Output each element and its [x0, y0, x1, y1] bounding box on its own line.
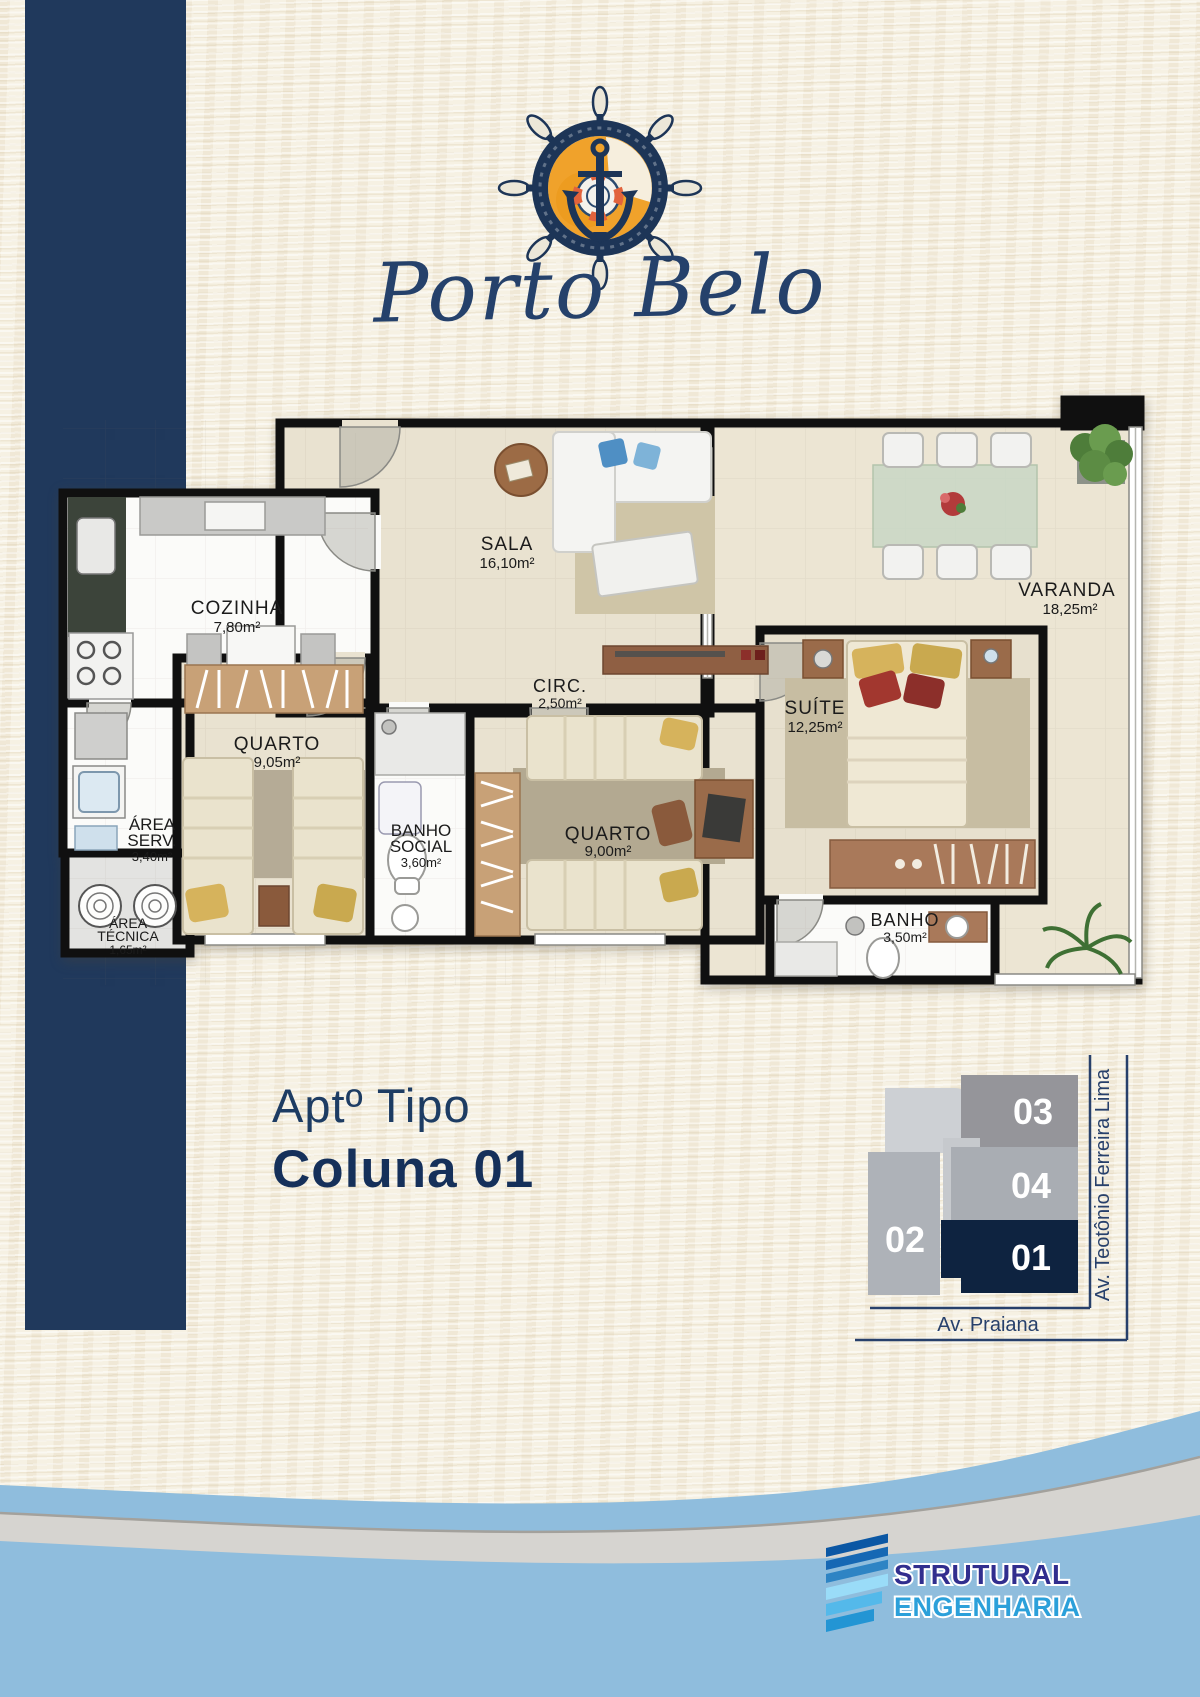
strutural-logo: STRUTURAL ENGENHARIA [812, 1532, 1112, 1652]
keymap-unit-01-number: 01 [1011, 1237, 1051, 1278]
keymap-unit-01-shape-highlighted [941, 1220, 1078, 1293]
label-varanda: VARANDA [1018, 580, 1115, 601]
label-banho: BANHO [870, 910, 939, 930]
label-area-tecnica-area: 1,65m² [109, 943, 146, 957]
keymap-unit-03-number: 03 [1013, 1091, 1053, 1132]
label-area-tecnica-2: TÉCNICA [97, 928, 159, 944]
label-suite-area: 12,25m² [787, 719, 842, 736]
label-quarto2-area: 9,00m² [585, 843, 632, 860]
label-circ-area: 2,50m² [538, 695, 582, 711]
label-area-serv-area: 3,40m² [132, 849, 173, 864]
builder-name-line1: STRUTURAL [894, 1559, 1070, 1590]
label-quarto1: QUARTO [234, 734, 321, 755]
bedroom1-furniture [182, 665, 365, 934]
apartment-column-label: Coluna 01 [272, 1139, 534, 1200]
label-cozinha-area: 7,80m² [214, 619, 261, 636]
label-varanda-area: 18,25m² [1042, 601, 1097, 618]
apartment-type-label: Aptº Tipo [272, 1078, 534, 1133]
label-sala: SALA [481, 534, 534, 555]
location-key-map: 03 04 01 02 Av. Teotônio Ferreira Lima A… [830, 1050, 1142, 1352]
street-label-bottom: Av. Praiana [937, 1314, 1039, 1336]
apartment-title-block: Aptº Tipo Coluna 01 [272, 1078, 534, 1200]
builder-name-line2: ENGENHARIA [894, 1592, 1081, 1622]
label-banho-social-area: 3,60m² [401, 855, 442, 870]
keymap-unit-04-number: 04 [1011, 1165, 1051, 1206]
label-cozinha: COZINHA [191, 598, 284, 619]
label-area-serv-2: SERV. [127, 831, 176, 850]
strutural-logo-mark [826, 1534, 888, 1632]
label-circ: CIRC. [533, 676, 587, 696]
label-quarto2: QUARTO [565, 824, 652, 845]
label-banho-social-2: SOCIAL [390, 837, 452, 856]
label-suite: SUÍTE [785, 698, 846, 719]
street-label-right: Av. Teotônio Ferreira Lima [1092, 1068, 1114, 1301]
label-sala-area: 16,10m² [479, 555, 534, 572]
label-banho-area: 3,50m² [883, 929, 927, 945]
keymap-unit-02-number: 02 [885, 1219, 925, 1260]
label-quarto1-area: 9,05m² [254, 754, 301, 771]
floor-plan: COZINHA 7,80m² SALA 16,10m² VARANDA 18,2… [55, 378, 1145, 988]
